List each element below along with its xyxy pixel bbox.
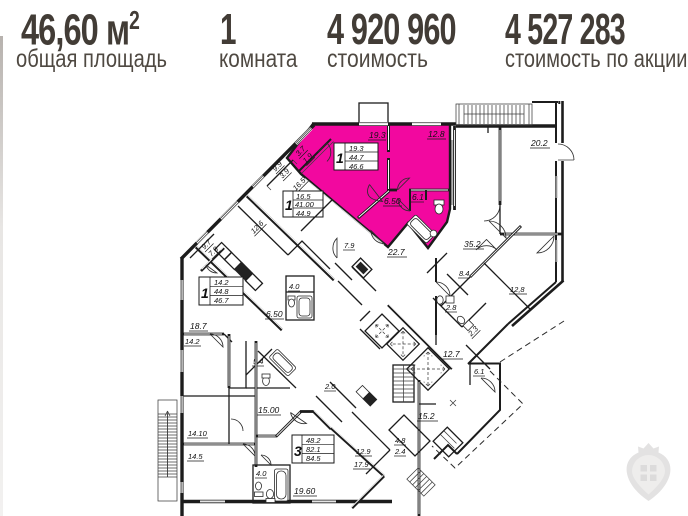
svg-text:4.0: 4.0	[289, 282, 300, 291]
svg-text:12,8: 12,8	[510, 285, 525, 294]
svg-text:18.7: 18.7	[190, 321, 207, 331]
svg-text:2.0: 2.0	[324, 382, 336, 391]
svg-text:44.7: 44.7	[349, 153, 364, 162]
svg-text:19.60: 19.60	[294, 486, 316, 496]
svg-text:6.50: 6.50	[266, 309, 283, 319]
svg-text:6.50: 6.50	[384, 196, 401, 206]
svg-text:4.8: 4.8	[395, 436, 406, 445]
svg-text:14.2: 14.2	[214, 278, 229, 287]
svg-text:84.5: 84.5	[306, 454, 321, 463]
svg-text:14.5: 14.5	[188, 452, 203, 461]
svg-text:44.8: 44.8	[214, 287, 229, 296]
svg-text:1: 1	[201, 285, 209, 301]
svg-text:8.4: 8.4	[459, 269, 469, 278]
svg-text:82.1: 82.1	[306, 445, 321, 454]
svg-text:6.1: 6.1	[474, 367, 484, 376]
svg-text:7.9: 7.9	[344, 241, 355, 250]
svg-text:44.9: 44.9	[296, 209, 311, 218]
svg-text:3: 3	[294, 443, 302, 459]
svg-text:19.3: 19.3	[369, 130, 386, 140]
svg-text:46.6: 46.6	[349, 162, 364, 171]
svg-text:48.2: 48.2	[306, 436, 321, 445]
svg-text:46.7: 46.7	[214, 296, 229, 305]
svg-text:1: 1	[336, 150, 344, 166]
svg-text:41.00: 41.00	[295, 200, 315, 209]
svg-text:20.2: 20.2	[530, 138, 548, 148]
svg-text:6.1: 6.1	[412, 192, 424, 202]
svg-text:14.2: 14.2	[185, 337, 200, 346]
svg-text:15.2: 15.2	[418, 411, 435, 421]
svg-text:15.00: 15.00	[258, 405, 280, 415]
svg-text:17.9: 17.9	[354, 460, 369, 469]
svg-text:14.10: 14.10	[188, 429, 208, 438]
svg-text:12.9: 12.9	[356, 447, 371, 456]
svg-text:1: 1	[285, 197, 293, 213]
svg-text:22.7: 22.7	[387, 247, 405, 257]
svg-text:5.4: 5.4	[253, 357, 263, 366]
svg-text:2.8: 2.8	[445, 303, 457, 312]
svg-text:19.3: 19.3	[349, 144, 364, 153]
svg-text:12.7: 12.7	[443, 349, 460, 359]
svg-text:4.0: 4.0	[256, 469, 267, 478]
svg-text:12.8: 12.8	[428, 129, 445, 139]
svg-text:2.4: 2.4	[394, 447, 405, 456]
